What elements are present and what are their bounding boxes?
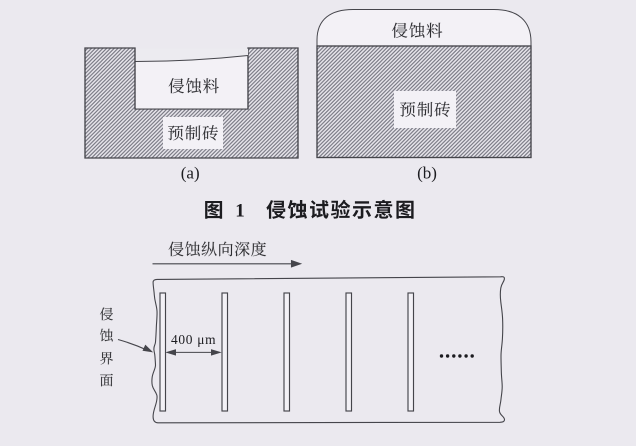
svg-text:400 μm: 400 μm (171, 332, 216, 347)
svg-text:(a): (a) (181, 163, 200, 182)
svg-text:(b): (b) (417, 163, 437, 182)
svg-text:1: 1 (235, 201, 245, 222)
